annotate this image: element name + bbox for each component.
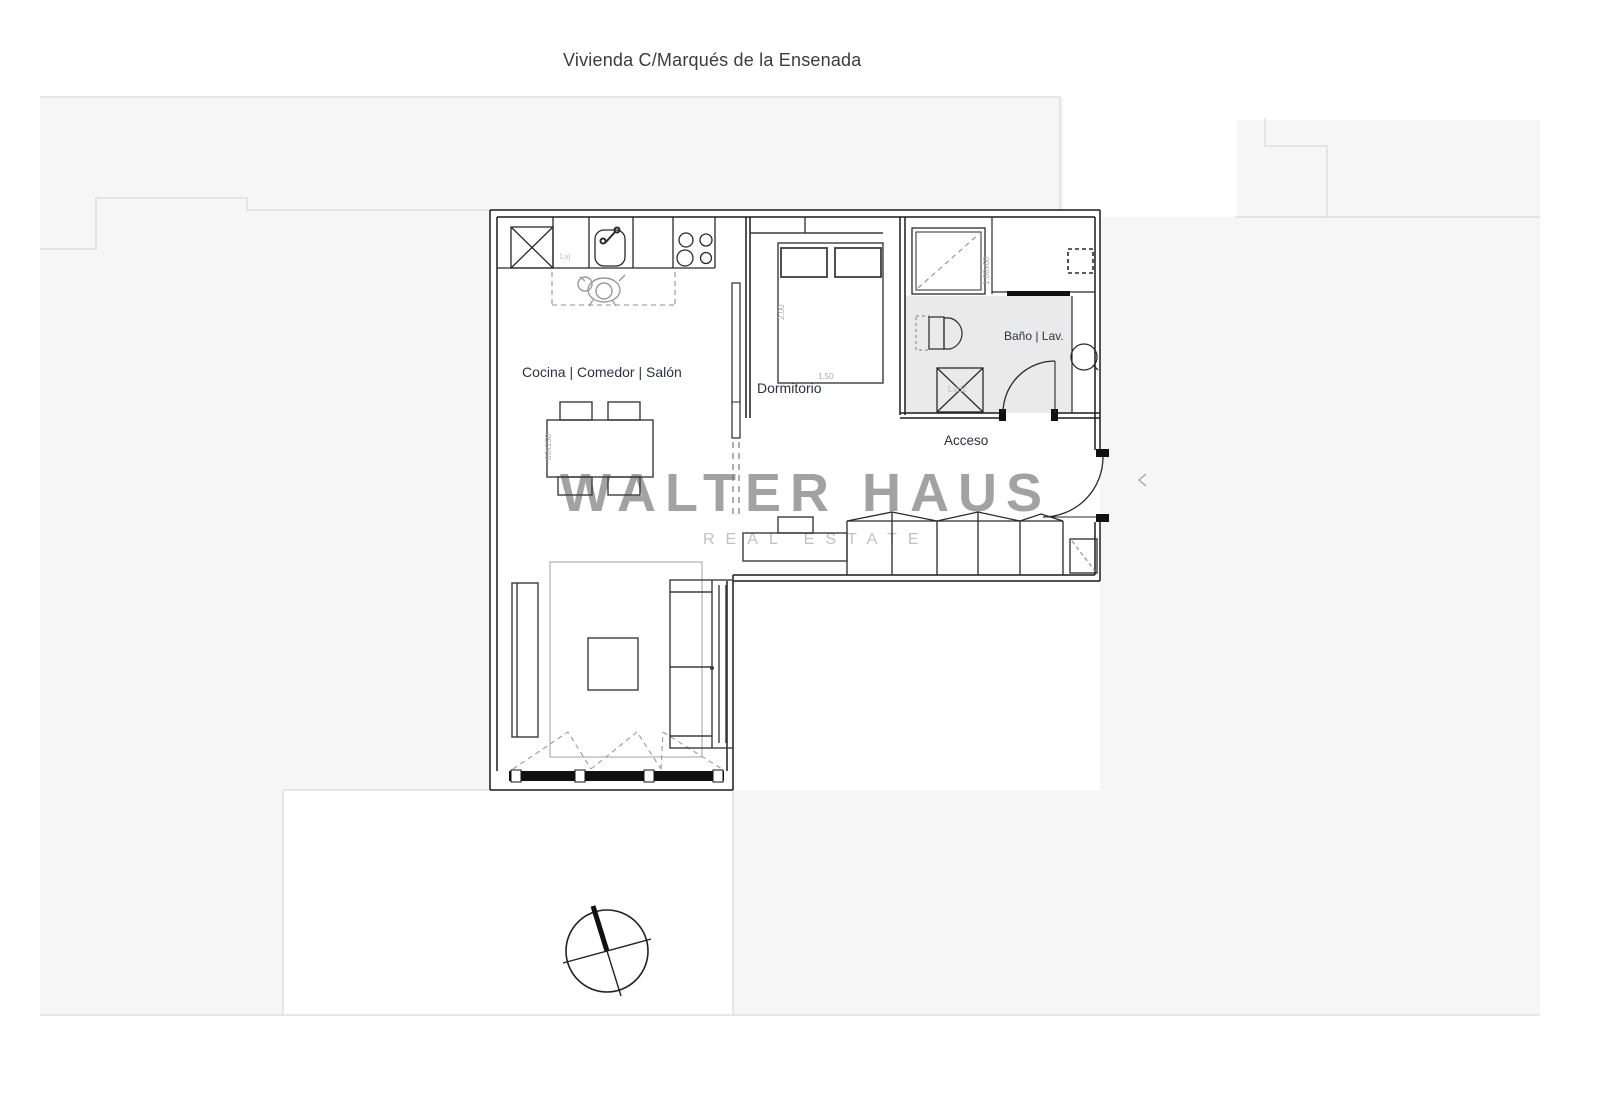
bed-width-dimension: 1.50 bbox=[818, 372, 834, 381]
north-arrow-icon bbox=[563, 906, 651, 996]
plan-title: Vivienda C/Marqués de la Ensenada bbox=[563, 50, 861, 71]
room-label-entry: Acceso bbox=[944, 433, 988, 448]
bed-length-dimension: 2.00 bbox=[777, 304, 786, 320]
room-label-bathroom: Baño | Lav. bbox=[1004, 329, 1064, 343]
counter-dimension: 1.88x60 bbox=[982, 257, 991, 285]
floor-plan-drawing bbox=[0, 0, 1600, 1117]
room-label-kitchen-living: Cocina | Comedor | Salón bbox=[522, 364, 682, 380]
room-label-bedroom: Dormitorio bbox=[757, 380, 822, 396]
table-dimension: 80x150 bbox=[544, 434, 553, 460]
floor-plan-page: WALTER HAUS REAL ESTATE bbox=[0, 0, 1600, 1117]
dishwasher-label: Lvj bbox=[560, 252, 570, 261]
washer-label: Lvdc bbox=[948, 384, 967, 394]
